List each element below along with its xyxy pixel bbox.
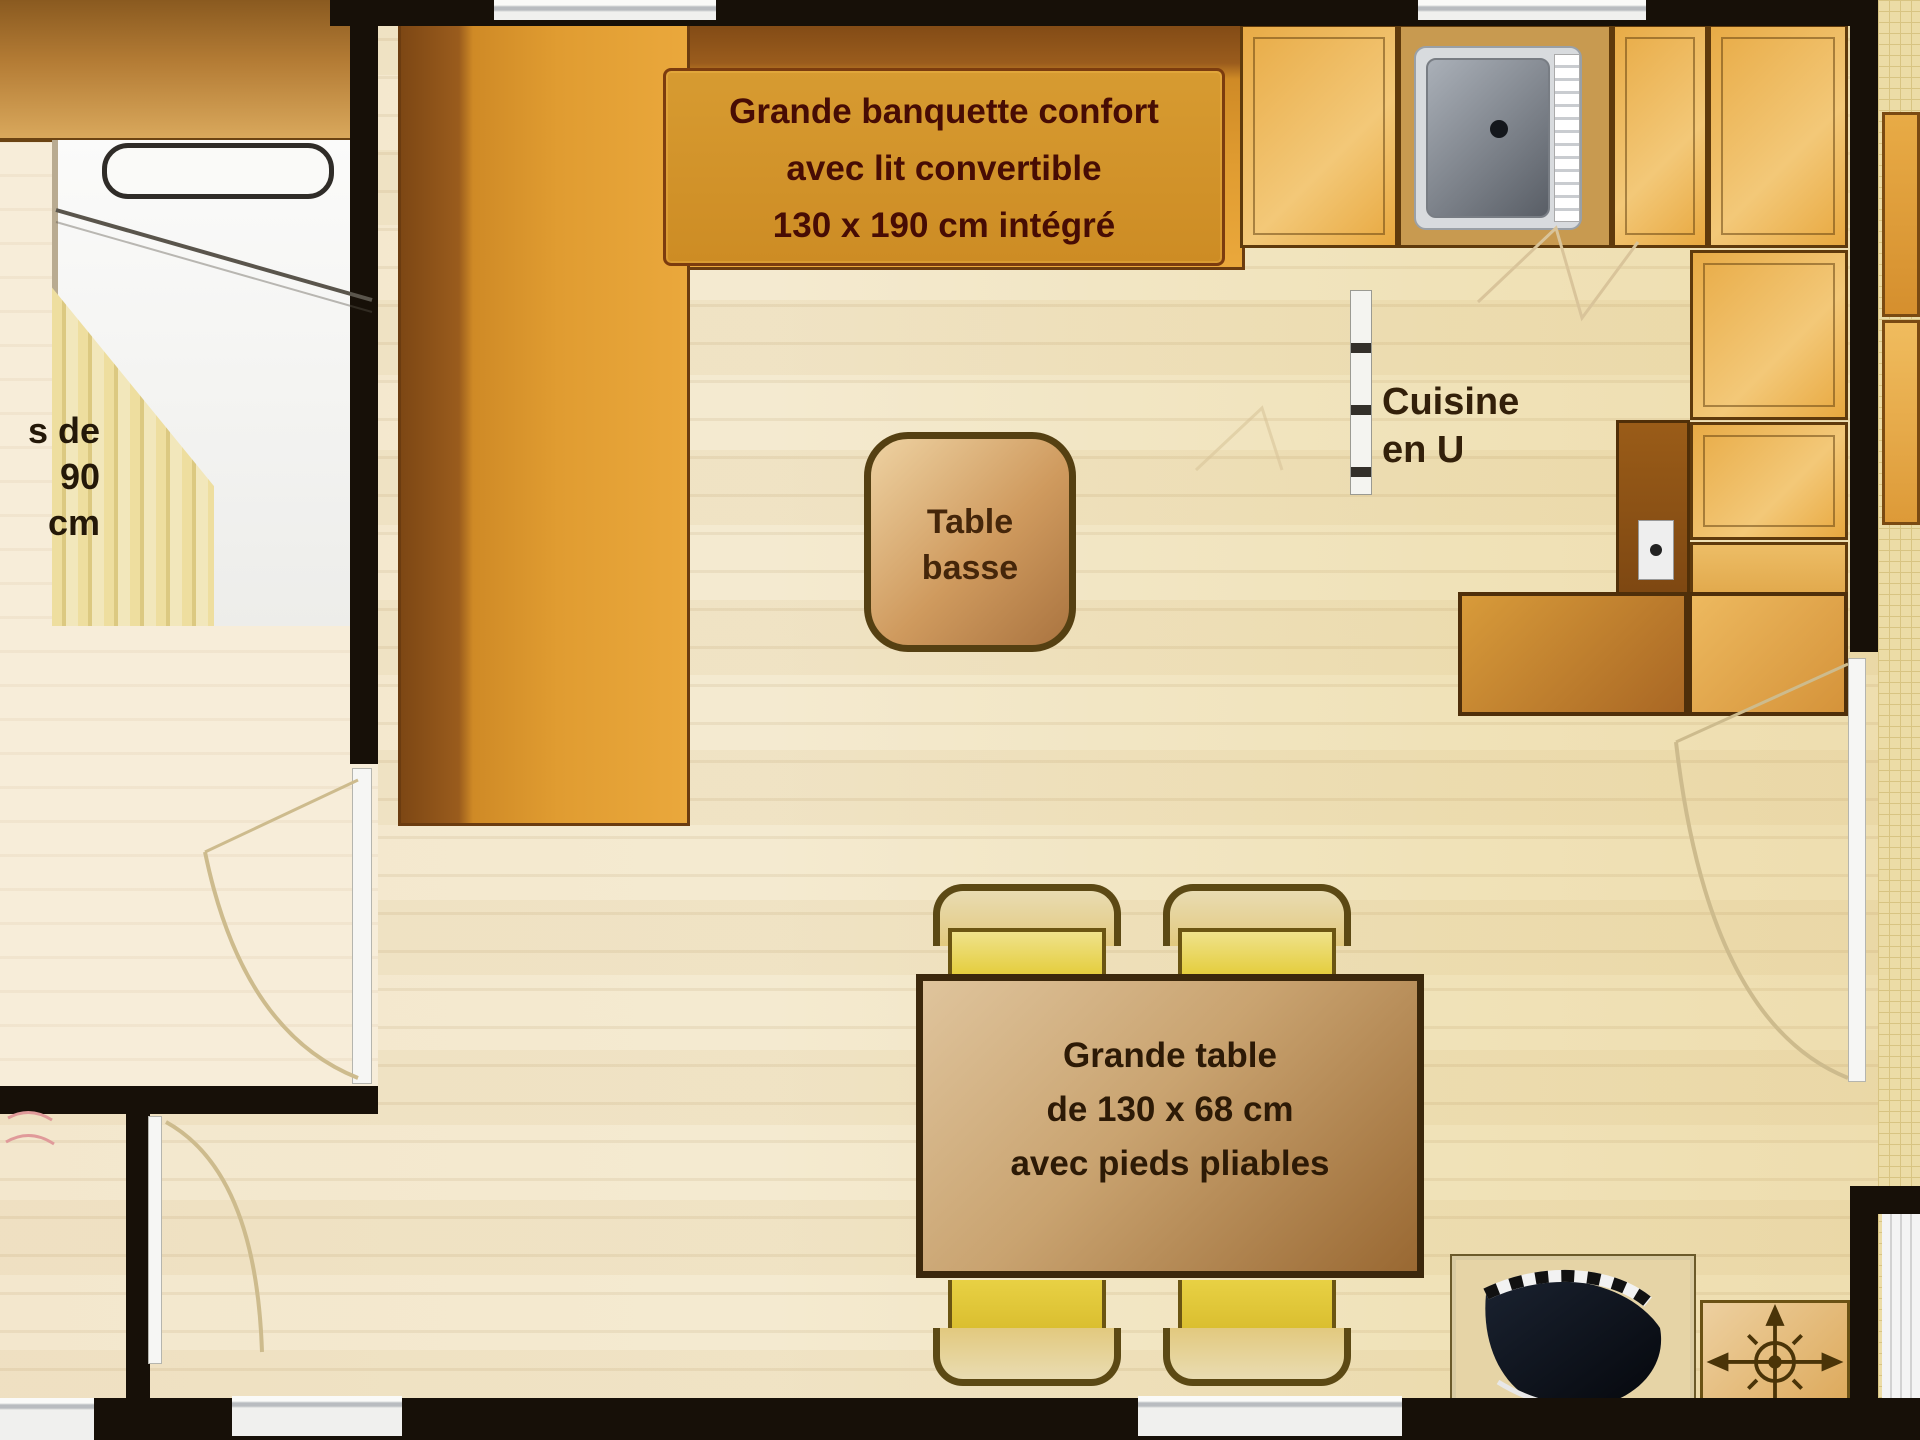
bed-label-line2: 90 cm bbox=[0, 454, 100, 546]
door-swing-arc-icon bbox=[166, 1122, 262, 1352]
bed-fold-line-2 bbox=[56, 222, 372, 312]
door-swing-arc-icon bbox=[205, 852, 358, 1078]
door-open-line bbox=[1676, 664, 1848, 742]
kitchen-label: Cuisine en U bbox=[1382, 378, 1602, 488]
door-swing-arc-icon bbox=[1676, 742, 1848, 1078]
kitchen-zigzag-mark bbox=[1196, 408, 1282, 470]
plan-lines-overlay bbox=[0, 0, 1920, 1440]
bed-fold-line bbox=[56, 210, 372, 300]
kitchen-label-line2: en U bbox=[1382, 426, 1602, 474]
kitchen-label-line1: Cuisine bbox=[1382, 378, 1602, 426]
bed-label-line1: s de bbox=[0, 408, 100, 454]
kitchen-zigzag-mark bbox=[1478, 228, 1638, 318]
floor-plan: Grande banquette confort avec lit conver… bbox=[0, 0, 1920, 1440]
washbasin-scribble bbox=[6, 1112, 54, 1144]
door-open-line bbox=[205, 780, 358, 852]
bed-label: s de 90 cm bbox=[0, 408, 100, 508]
